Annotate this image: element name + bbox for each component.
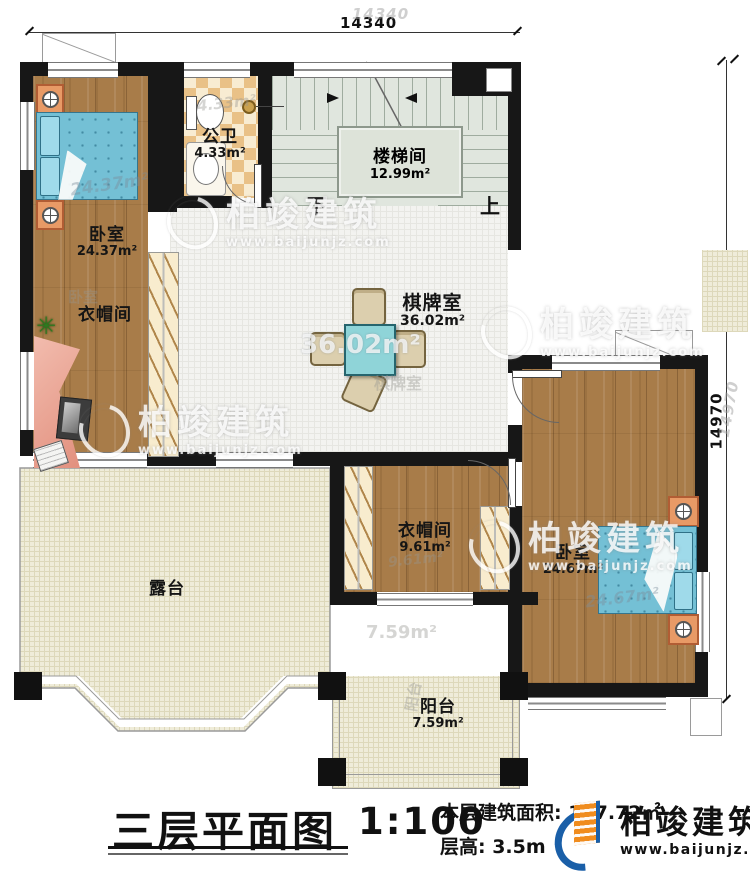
watermark-url: www.baijunjz.com <box>138 444 303 457</box>
watermark: 柏竣建筑 www.baijunjz.com <box>470 520 693 574</box>
company-url: www.baijunjz.com <box>620 843 750 857</box>
room-area: 36.02m² <box>385 314 480 330</box>
watermark-name: 柏竣建筑 <box>528 522 693 556</box>
ghost-text: 棋牌室 <box>374 370 422 394</box>
title-underline <box>108 846 348 849</box>
wall <box>508 425 522 462</box>
watermark-url: www.baijunjz.com <box>540 346 705 359</box>
room-name: 公卫 <box>175 128 265 147</box>
stairwell-label-box: 楼梯间 12.99m² <box>337 126 463 198</box>
ghost-text: 7.59m² <box>366 622 437 643</box>
room-name: 卧室 <box>62 226 152 245</box>
wall <box>250 62 294 76</box>
window <box>184 62 250 78</box>
watermark-url: www.baijunjz.com <box>226 236 391 249</box>
chair <box>352 288 386 326</box>
watermark-logo-icon <box>158 187 228 259</box>
window <box>20 102 35 170</box>
company-logo: 柏竣建筑 www.baijunjz.com <box>556 800 750 862</box>
door-arc-bedroom-right <box>512 376 559 423</box>
dimension-top-ghost: 14340 <box>352 5 409 23</box>
pillar <box>500 758 528 786</box>
watermark: 柏竣建筑 www.baijunjz.com <box>80 404 303 458</box>
room-label-cloakroom-left: 衣帽间 <box>60 306 150 325</box>
wall <box>330 452 344 605</box>
watermark-logo-icon <box>472 297 542 369</box>
company-name: 柏竣建筑 <box>620 806 750 838</box>
nightstand <box>668 614 699 645</box>
room-name: 棋牌室 <box>385 293 480 314</box>
room-name-stairwell: 楼梯间 <box>373 142 427 167</box>
nightstand <box>36 200 64 230</box>
building-logo-icon <box>556 800 612 862</box>
ghost-text: 36.02m² <box>300 330 421 360</box>
dimension-tick <box>513 26 522 35</box>
knob-line <box>256 106 284 107</box>
watermark-logo-icon <box>70 395 140 467</box>
stair-up-label: 上 <box>480 190 500 219</box>
watermark-name: 柏竣建筑 <box>138 406 303 440</box>
dimension-tick <box>25 26 34 35</box>
room-area-stairwell: 12.99m² <box>370 167 430 182</box>
dimension-tick <box>717 56 726 65</box>
dimension-tick <box>722 694 731 703</box>
wall <box>148 62 177 212</box>
pillow <box>40 116 60 156</box>
wall <box>20 170 33 352</box>
window <box>377 593 473 606</box>
step-outline-bottomright <box>690 698 722 736</box>
watermark-logo-icon <box>460 511 530 583</box>
stair-direction-arrow <box>327 93 339 103</box>
room-area: 4.33m² <box>175 147 265 162</box>
watermark-url: www.baijunjz.com <box>528 560 693 573</box>
plan-title: 三层平面图 <box>112 798 337 859</box>
wall <box>20 430 33 456</box>
wall <box>330 592 377 605</box>
dimension-right-ghost: 14970 <box>715 379 743 438</box>
room-name: 衣帽间 <box>380 522 470 541</box>
watermark: 柏竣建筑 www.baijunjz.com <box>168 196 391 250</box>
watermark-name: 柏竣建筑 <box>540 308 705 342</box>
roof-texture-right <box>702 250 748 332</box>
window <box>528 697 666 710</box>
wardrobe <box>344 466 373 590</box>
room-label-game-room: 棋牌室 36.02m² <box>385 293 480 330</box>
title-underline-2 <box>108 853 348 855</box>
pillow <box>40 157 60 196</box>
watermark: 柏竣建筑 www.baijunjz.com <box>482 306 705 360</box>
wall <box>508 683 708 697</box>
window <box>20 352 35 430</box>
watermark-name: 柏竣建筑 <box>226 198 391 232</box>
pillar <box>318 758 346 786</box>
ghost-text: 卧室 <box>68 286 98 307</box>
stair-direction-arrow <box>405 93 417 103</box>
room-label-bathroom: 公卫 4.33m² <box>175 128 265 162</box>
room-name: 露台 <box>122 580 212 599</box>
room-label-terrace: 露台 <box>122 580 212 599</box>
plant-icon: ✳ <box>36 312 56 340</box>
flue-box <box>486 68 512 92</box>
dimension-tick <box>730 54 739 63</box>
pillow <box>674 572 693 610</box>
room-label-bedroom-left: 卧室 24.37m² <box>62 226 152 260</box>
pillar <box>500 672 528 700</box>
terrace-outline <box>14 462 344 742</box>
floor-plan-canvas: 14340 14340 14970 14970 楼梯间 12.99m² 下 上 <box>0 0 750 871</box>
window <box>48 62 118 78</box>
room-area: 7.59m² <box>393 717 483 732</box>
pillar <box>318 672 346 700</box>
window <box>294 62 452 78</box>
wall <box>20 62 33 102</box>
nightstand <box>36 84 64 114</box>
room-area: 24.37m² <box>62 245 152 260</box>
wall <box>473 592 538 605</box>
room-name: 衣帽间 <box>60 306 150 325</box>
pillar <box>14 672 42 700</box>
floor-height-text: 层高: 3.5m <box>440 832 546 859</box>
